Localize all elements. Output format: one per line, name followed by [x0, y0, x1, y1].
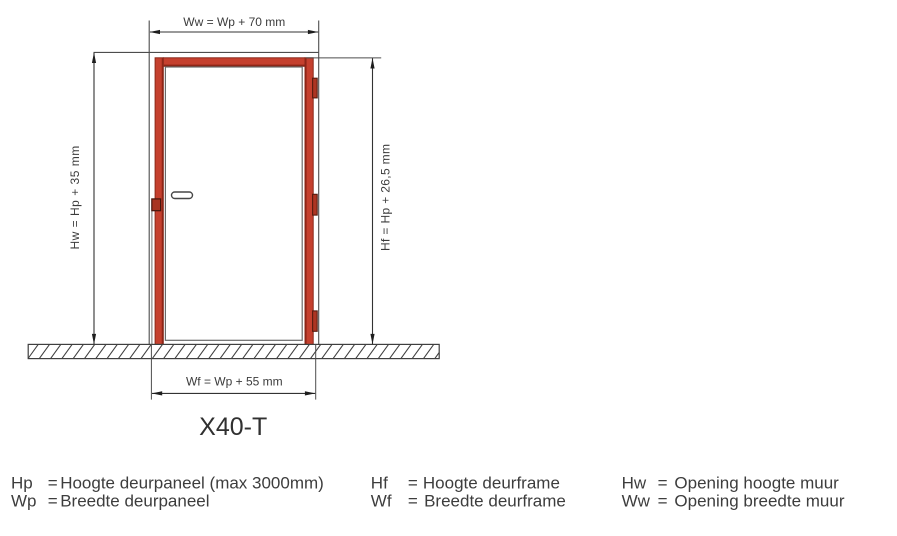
svg-text:Wf = Wp + 55 mm: Wf = Wp + 55 mm [186, 374, 283, 388]
svg-text:=: = [658, 491, 668, 510]
svg-text:=: = [408, 491, 418, 510]
svg-text:Ww: Ww [622, 491, 651, 510]
svg-text:Hw = Hp + 35 mm: Hw = Hp + 35 mm [68, 145, 82, 249]
svg-text:Ww = Wp + 70 mm: Ww = Wp + 70 mm [183, 15, 285, 29]
svg-text:Hw: Hw [622, 473, 647, 492]
svg-text:Hoogte deurpaneel (max 3000mm): Hoogte deurpaneel (max 3000mm) [60, 473, 324, 492]
svg-text:=: = [658, 473, 668, 492]
svg-text:Breedte deurpaneel: Breedte deurpaneel [60, 491, 209, 510]
svg-text:Breedte deurframe: Breedte deurframe [424, 491, 566, 510]
svg-text:=: = [48, 491, 58, 510]
svg-text:Wf: Wf [371, 491, 392, 510]
svg-text:Opening breedte muur: Opening breedte muur [674, 491, 844, 510]
svg-text:Hf = Hp + 26,5 mm: Hf = Hp + 26,5 mm [379, 144, 393, 251]
svg-text:=: = [48, 473, 58, 492]
svg-text:X40-T: X40-T [199, 413, 267, 441]
svg-text:Wp: Wp [11, 491, 37, 510]
svg-text:Opening hoogte muur: Opening hoogte muur [674, 473, 839, 492]
svg-text:Hp: Hp [11, 473, 33, 492]
svg-text:Hf: Hf [371, 473, 388, 492]
svg-text:=: = [408, 473, 418, 492]
svg-text:Hoogte deurframe: Hoogte deurframe [423, 473, 560, 492]
